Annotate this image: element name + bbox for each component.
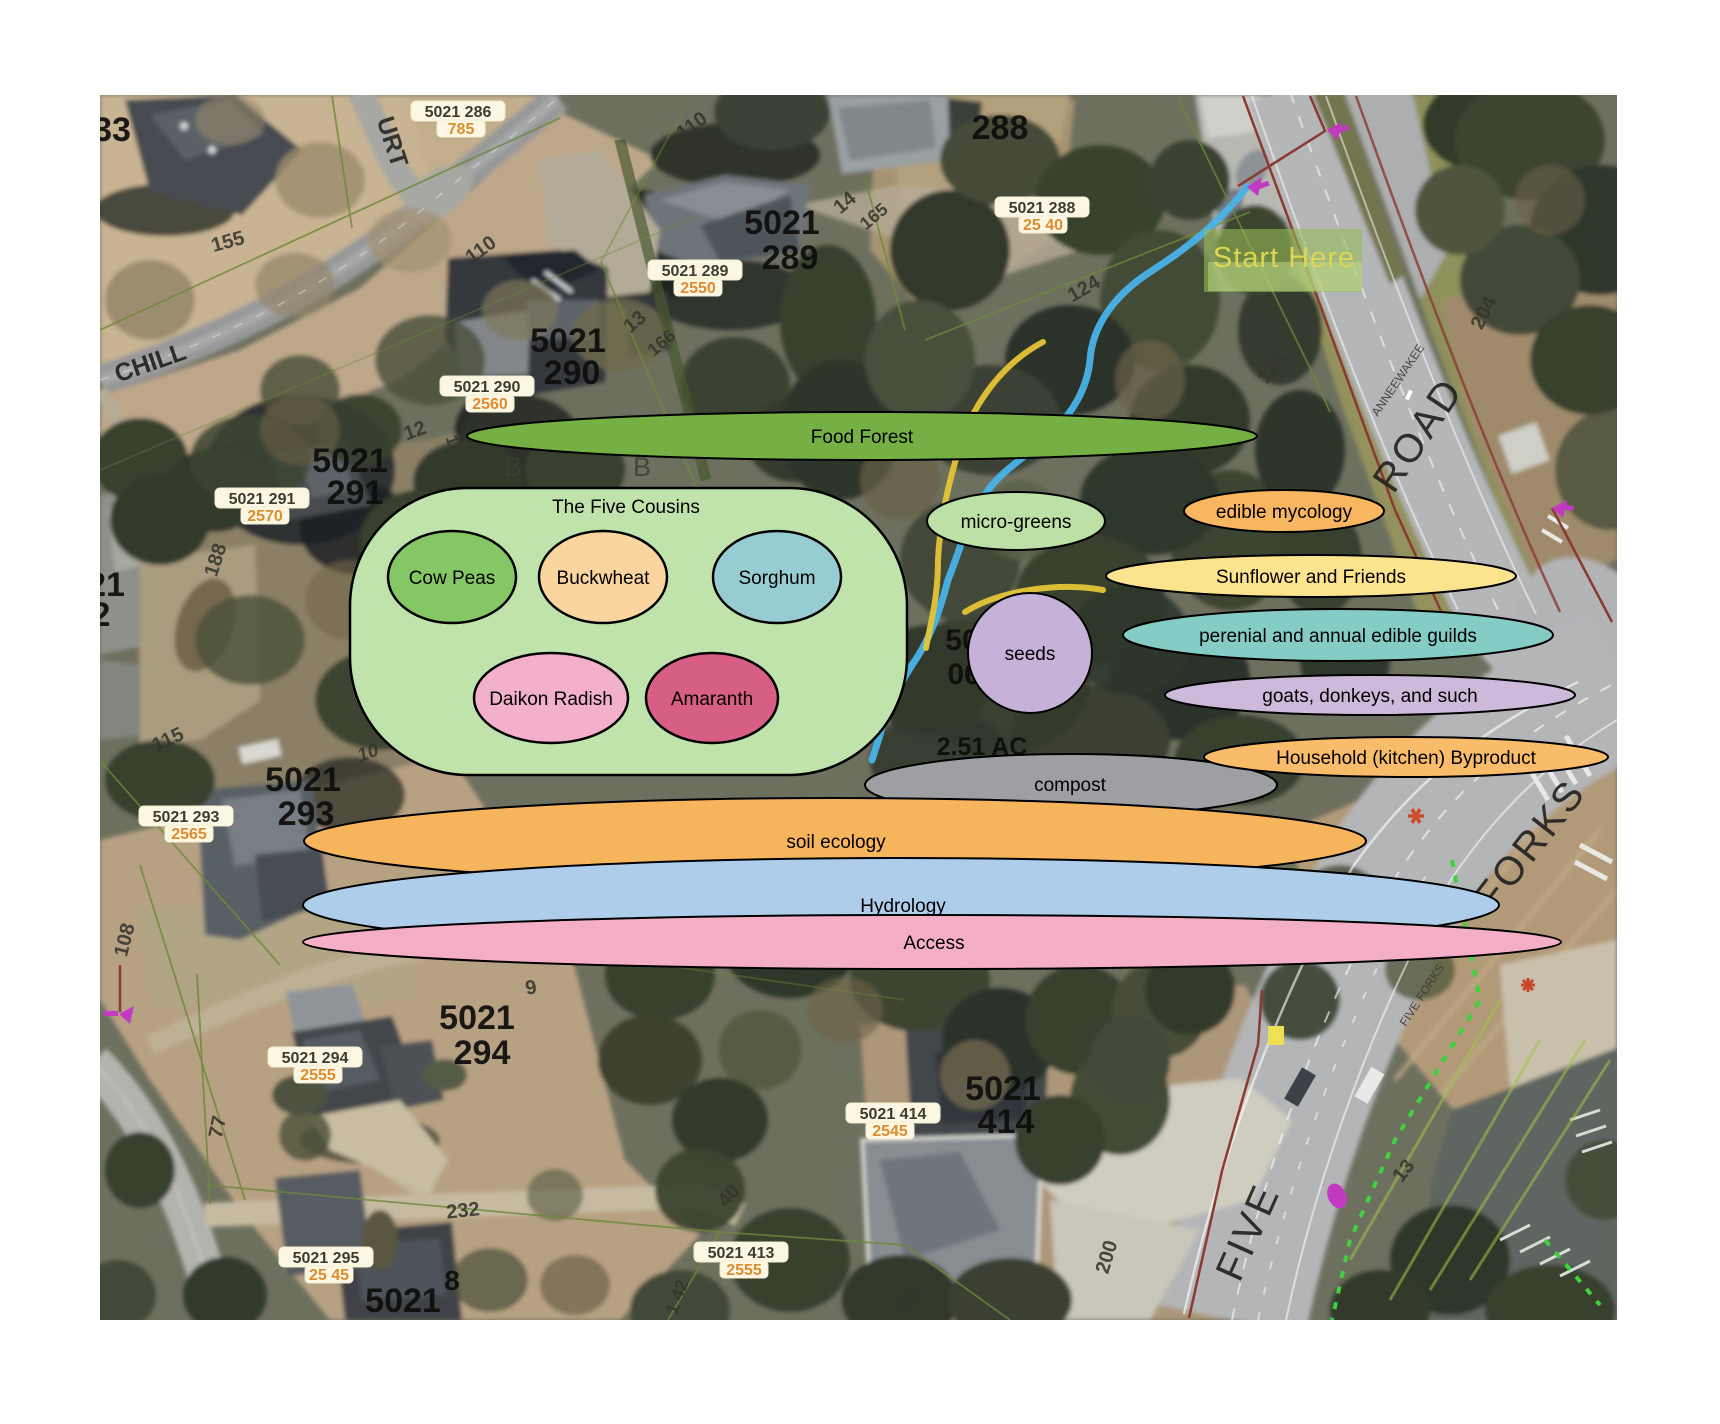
svg-text:5021 290: 5021 290: [454, 379, 521, 396]
svg-text:25 45: 25 45: [309, 1267, 349, 1284]
svg-text:25 40: 25 40: [1023, 217, 1063, 234]
svg-text:293: 293: [278, 795, 335, 833]
svg-text:2565: 2565: [171, 826, 207, 843]
svg-text:edible mycology: edible mycology: [1216, 502, 1353, 523]
svg-text:seeds: seeds: [1005, 644, 1056, 665]
svg-text:compost: compost: [1034, 775, 1107, 796]
svg-text:Daikon Radish: Daikon Radish: [489, 689, 613, 710]
svg-text:soil ecology: soil ecology: [786, 832, 886, 853]
svg-text:2570: 2570: [247, 508, 283, 525]
svg-text:Food Forest: Food Forest: [811, 427, 914, 448]
svg-text:291: 291: [327, 474, 384, 512]
svg-text:Household (kitchen) Byproduct: Household (kitchen) Byproduct: [1276, 748, 1537, 769]
svg-text:5021 414: 5021 414: [860, 1106, 927, 1123]
svg-text:2545: 2545: [872, 1123, 908, 1140]
svg-text:5021 294: 5021 294: [282, 1050, 349, 1067]
svg-text:414: 414: [978, 1103, 1035, 1141]
svg-text:2560: 2560: [472, 396, 508, 413]
svg-text:micro-greens: micro-greens: [961, 512, 1072, 533]
svg-text:5021 295: 5021 295: [293, 1250, 360, 1267]
svg-text:Hydrology: Hydrology: [860, 896, 946, 917]
svg-text:The Five Cousins: The Five Cousins: [552, 497, 700, 518]
svg-text:5021 413: 5021 413: [708, 1245, 775, 1262]
svg-text:5021 293: 5021 293: [153, 809, 220, 826]
svg-text:5021: 5021: [744, 204, 820, 242]
svg-text:Sorghum: Sorghum: [738, 568, 815, 589]
svg-text:Buckwheat: Buckwheat: [557, 568, 651, 589]
svg-text:289: 289: [762, 239, 819, 277]
svg-text:5021 286: 5021 286: [425, 104, 492, 121]
svg-text:5021: 5021: [439, 999, 515, 1037]
svg-text:294: 294: [454, 1034, 511, 1072]
svg-text:290: 290: [544, 354, 601, 392]
svg-text:2555: 2555: [300, 1067, 336, 1084]
svg-text:Access: Access: [903, 933, 964, 954]
svg-text:288: 288: [972, 109, 1029, 147]
svg-text:perenial and annual edible gui: perenial and annual edible guilds: [1199, 626, 1477, 647]
svg-text:Start Here: Start Here: [1213, 242, 1355, 274]
svg-text:5021 291: 5021 291: [229, 491, 296, 508]
svg-text:232: 232: [445, 1198, 480, 1223]
svg-text:2550: 2550: [680, 280, 716, 297]
svg-text:5021 288: 5021 288: [1009, 200, 1076, 217]
svg-text:5021: 5021: [265, 761, 341, 799]
svg-text:Sunflower and Friends: Sunflower and Friends: [1216, 567, 1406, 588]
svg-text:Cow Peas: Cow Peas: [409, 568, 496, 589]
svg-text:Amaranth: Amaranth: [671, 689, 753, 710]
svg-text:2555: 2555: [726, 1262, 762, 1279]
svg-text:77: 77: [205, 1114, 231, 1140]
svg-text:8: 8: [444, 1265, 460, 1296]
svg-text:785: 785: [448, 121, 475, 138]
svg-text:goats, donkeys, and such: goats, donkeys, and such: [1262, 686, 1477, 707]
svg-text:5021 289: 5021 289: [662, 263, 729, 280]
svg-text:5021: 5021: [365, 1282, 441, 1320]
